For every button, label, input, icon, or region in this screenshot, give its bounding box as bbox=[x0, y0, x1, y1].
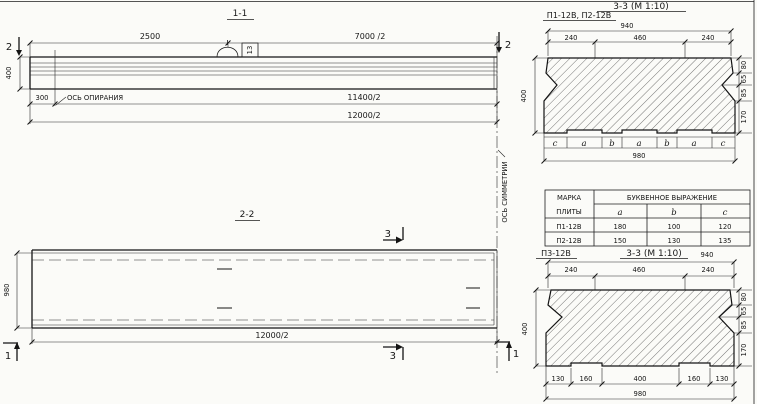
letter-c1: c bbox=[553, 139, 558, 149]
plan-weld-marks bbox=[217, 269, 480, 308]
cut-marker-1-right: 1 bbox=[495, 341, 519, 361]
dim-80: 80 bbox=[740, 61, 748, 70]
dim-240-right: 240 bbox=[702, 34, 715, 42]
plates-label: П1-12В, П2-12В bbox=[547, 11, 611, 20]
section-3-3-top-title: 3-3 (М 1:10) bbox=[613, 2, 668, 12]
dim-160-left: 160 bbox=[580, 375, 593, 383]
cut-marker-3-bottom: 3 bbox=[383, 344, 403, 363]
section-3-3-bottom-title: 3-3 (М 1:10) bbox=[626, 249, 681, 259]
drawing-canvas: 1-1 13 2500 7000 /2 400 300 ОСЬ ОПИРАНИЯ… bbox=[0, 0, 757, 404]
support-axis-label: ОСЬ ОПИРАНИЯ bbox=[67, 94, 123, 102]
row1-a: 180 bbox=[614, 223, 627, 231]
section-3-3-top-view: 3-3 (М 1:10) П1-12В, П2-12В 940 240 460 … bbox=[520, 2, 752, 164]
cross-section-bottom bbox=[546, 290, 734, 366]
section-2-2-title: 2-2 bbox=[240, 210, 255, 220]
letter-c2: c bbox=[721, 139, 726, 149]
dim-400: 400 bbox=[521, 323, 529, 336]
table-row: П1-12В 180 100 120 bbox=[556, 223, 731, 231]
dim-460: 460 bbox=[633, 266, 646, 274]
row2-mark: П2-12В bbox=[556, 237, 582, 245]
dim-ticks bbox=[18, 41, 500, 125]
section-3-3-bottom-view: П3-12В 3-3 (М 1:10) 940 240 460 240 400 … bbox=[521, 249, 752, 402]
section-2-2-view: 2-2 980 12000/2 3 3 1 1 bbox=[3, 210, 519, 362]
dim-460: 460 bbox=[634, 34, 647, 42]
table-header-a: a bbox=[617, 208, 622, 218]
plan-hidden-lines bbox=[32, 260, 494, 320]
letter-a3: a bbox=[691, 139, 696, 149]
dim-980: 980 bbox=[3, 284, 11, 297]
row1-mark: П1-12В bbox=[556, 223, 582, 231]
dim-2500: 2500 bbox=[140, 32, 160, 41]
dim-130-right: 130 bbox=[716, 375, 729, 383]
height-dim-line bbox=[20, 57, 30, 89]
letter-a1: a bbox=[581, 139, 586, 149]
dim-130-left: 130 bbox=[552, 375, 565, 383]
row2-c: 135 bbox=[719, 237, 732, 245]
row1-c: 120 bbox=[719, 223, 732, 231]
dim-400: 400 bbox=[520, 90, 528, 103]
dim-160-right: 160 bbox=[688, 375, 701, 383]
dim-85: 85 bbox=[740, 89, 748, 98]
cut-marker-3-top: 3 bbox=[383, 227, 403, 244]
width-dim-line bbox=[17, 253, 32, 328]
plan-inner-edges bbox=[32, 250, 497, 328]
section-1-1-view: 1-1 13 2500 7000 /2 400 300 ОСЬ ОПИРАНИЯ… bbox=[5, 9, 511, 125]
symmetry-axis-leader bbox=[498, 150, 505, 157]
plan-edges bbox=[32, 250, 497, 328]
dim-170: 170 bbox=[740, 344, 748, 357]
cut-marker-1-left-label: 1 bbox=[5, 351, 11, 362]
cut-marker-2-left-label: 2 bbox=[6, 42, 12, 53]
table-header-group: БУКВЕННОЕ ВЫРАЖЕНИЕ bbox=[627, 194, 717, 202]
cross-section-top bbox=[544, 58, 735, 133]
row1-b: 100 bbox=[668, 223, 681, 231]
letter-b2: b bbox=[664, 139, 669, 149]
dim-940: 940 bbox=[621, 22, 634, 30]
table-header-b: b bbox=[671, 208, 676, 218]
dim-12000-2: 12000/2 bbox=[347, 111, 380, 120]
table-header-c: c bbox=[723, 208, 728, 218]
table-header-mark-1: МАРКА bbox=[557, 194, 581, 202]
dim-980: 980 bbox=[634, 390, 647, 398]
dim-12000-2-plan: 12000/2 bbox=[255, 331, 288, 340]
dim-240-left: 240 bbox=[565, 266, 578, 274]
dim-240-line bbox=[548, 42, 731, 58]
dim-7000-2: 7000 /2 bbox=[355, 32, 386, 41]
strand-lines bbox=[30, 57, 497, 89]
letter-b1: b bbox=[609, 139, 614, 149]
dim-240-left: 240 bbox=[565, 34, 578, 42]
row2-a: 150 bbox=[614, 237, 627, 245]
dim-400-bottom: 400 bbox=[634, 375, 647, 383]
lifting-loop bbox=[217, 40, 238, 57]
letter-a2: a bbox=[636, 139, 641, 149]
cut-marker-1-left: 1 bbox=[3, 342, 20, 362]
slab-edges bbox=[30, 57, 497, 89]
cut-marker-3-top-label: 3 bbox=[385, 229, 391, 240]
dim-940: 940 bbox=[701, 251, 714, 259]
dim-240-right: 240 bbox=[702, 266, 715, 274]
drawing-sheet: 1-1 13 2500 7000 /2 400 300 ОСЬ ОПИРАНИЯ… bbox=[0, 0, 757, 404]
section-1-1-title: 1-1 bbox=[233, 9, 248, 19]
loop-mark-label: 13 bbox=[246, 46, 254, 55]
symmetry-axis-label: ОСЬ СИММЕТРИИ bbox=[501, 161, 509, 222]
dim-400: 400 bbox=[5, 67, 13, 80]
table-row: П2-12В 150 130 135 bbox=[556, 237, 731, 245]
plate-table: МАРКА ПЛИТЫ БУКВЕННОЕ ВЫРАЖЕНИЕ a b c П1… bbox=[545, 190, 750, 246]
top-dim-line bbox=[30, 43, 497, 57]
dim-240-line bbox=[548, 276, 734, 290]
table-header-mark-2: ПЛИТЫ bbox=[556, 208, 581, 216]
dim-11400-2: 11400/2 bbox=[347, 93, 380, 102]
cut-marker-1-right-label: 1 bbox=[513, 349, 519, 360]
dim-65: 65 bbox=[740, 75, 748, 84]
cut-marker-2-left: 2 bbox=[6, 37, 22, 56]
dim-65: 65 bbox=[740, 307, 748, 316]
row2-b: 130 bbox=[668, 237, 681, 245]
cut-marker-3-bottom-label: 3 bbox=[390, 351, 396, 362]
symmetry-axis: ОСЬ СИММЕТРИИ bbox=[497, 36, 509, 375]
dim-300: 300 bbox=[36, 94, 49, 102]
dim-170: 170 bbox=[740, 111, 748, 124]
plate-label: П3-12В bbox=[541, 249, 571, 258]
dim-80: 80 bbox=[740, 293, 748, 302]
dim-85: 85 bbox=[740, 321, 748, 330]
cut-marker-2-right: 2 bbox=[496, 32, 511, 53]
dim-980: 980 bbox=[633, 152, 646, 160]
cut-marker-2-right-label: 2 bbox=[505, 40, 511, 51]
